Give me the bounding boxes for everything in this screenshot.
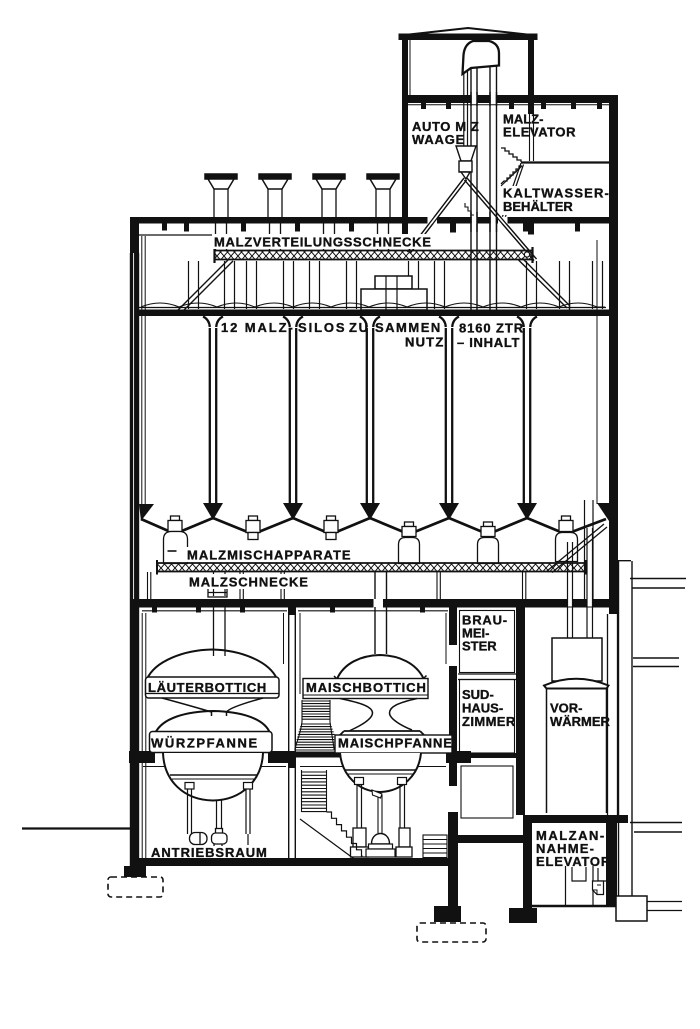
svg-text:MAISCHPFANNE: MAISCHPFANNE (338, 736, 453, 751)
svg-text:LÄUTERBOTTICH: LÄUTERBOTTICH (148, 680, 267, 695)
svg-text:ZIMMER: ZIMMER (462, 714, 516, 729)
svg-text:MALZSCHNECKE: MALZSCHNECKE (189, 575, 309, 590)
svg-text:ELEVATOR: ELEVATOR (503, 125, 576, 140)
svg-text:SILOS: SILOS (298, 320, 347, 335)
svg-text:WAAGE: WAAGE (412, 132, 465, 147)
svg-text:ELEVATOR: ELEVATOR (536, 854, 611, 869)
svg-text:12 MALZ-: 12 MALZ- (221, 320, 295, 335)
svg-text:– INHALT: – INHALT (457, 335, 520, 350)
svg-text:MALZVERTEILUNGSSCHNECKE: MALZVERTEILUNGSSCHNECKE (214, 235, 432, 250)
svg-text:MALZMISCHAPPARATE: MALZMISCHAPPARATE (187, 548, 352, 563)
svg-text:NUTZ: NUTZ (405, 335, 444, 350)
svg-text:WÜRZPFANNE: WÜRZPFANNE (151, 736, 259, 751)
svg-text:MAISCHBOTTICH: MAISCHBOTTICH (306, 680, 427, 695)
svg-text:STER: STER (462, 639, 497, 654)
svg-text:8160 ZTR: 8160 ZTR (459, 321, 524, 336)
svg-text:ZU: ZU (349, 320, 370, 335)
svg-text:WÄRMER: WÄRMER (550, 714, 611, 729)
svg-text:BEHÄLTER: BEHÄLTER (503, 199, 573, 214)
svg-text:ANTRIEBSRAUM: ANTRIEBSRAUM (151, 845, 268, 860)
svg-text:SAMMEN: SAMMEN (375, 320, 442, 335)
